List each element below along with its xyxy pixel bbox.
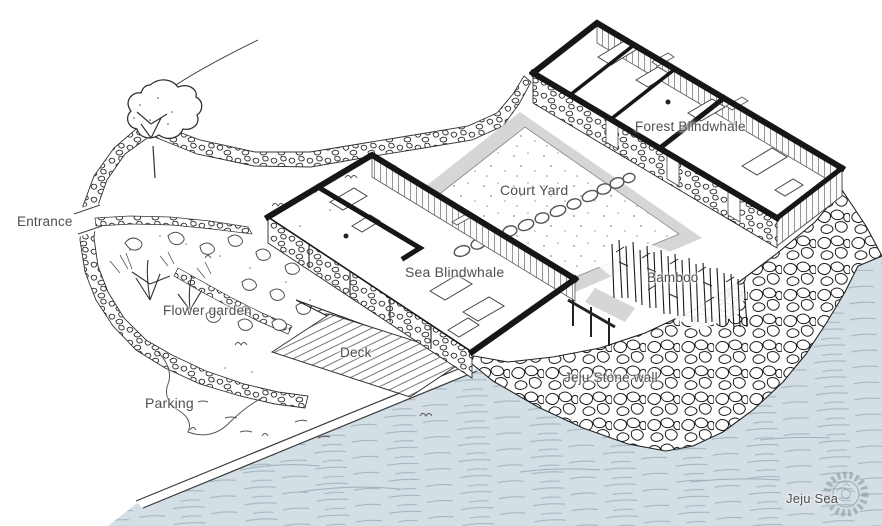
label-forest-blindwhale: Forest Blindwhale: [635, 119, 746, 134]
label-sea-blindwhale: Sea Blindwhale: [405, 264, 504, 280]
label-flower-garden: Flower garden: [163, 303, 252, 318]
label-bamboo: Bamboo: [647, 270, 698, 285]
label-jeju-stone-wall: Jeju Stone wall: [564, 370, 658, 385]
label-jeju-sea: Jeju Sea: [786, 491, 838, 506]
label-entrance: Entrance: [17, 214, 73, 229]
label-deck: Deck: [340, 345, 372, 360]
site-plan-drawing: Entrance Flower garden Parking Deck Sea …: [0, 0, 882, 526]
label-parking: Parking: [145, 395, 194, 411]
tree-illustration: [128, 80, 202, 178]
sketch-artwork: [0, 0, 882, 526]
label-court-yard: Court Yard: [500, 182, 568, 198]
